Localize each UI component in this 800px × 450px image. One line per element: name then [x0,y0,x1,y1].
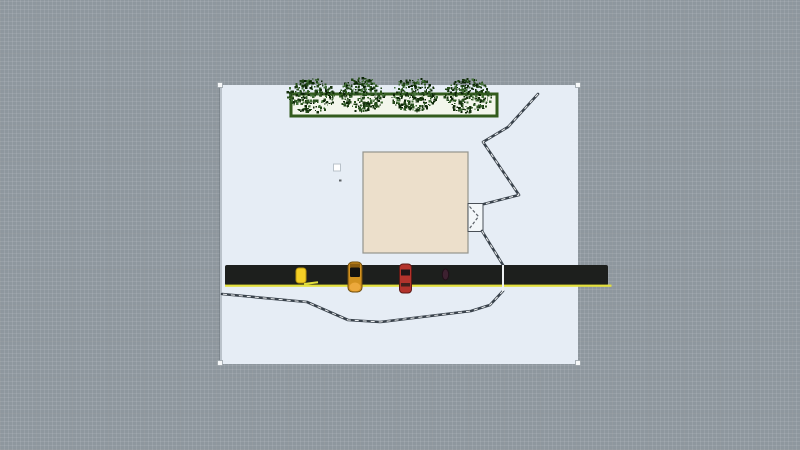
building[interactable] [363,152,468,253]
editor-workspace[interactable] [0,0,800,450]
vehicle-taxi-hood [350,264,360,268]
road[interactable] [225,265,608,286]
road-lane-line [225,285,612,287]
vehicle-red-body[interactable] [400,264,412,293]
pedestrian[interactable] [442,269,448,280]
marker-speck [339,180,342,182]
resize-handle-ne[interactable] [576,83,581,88]
editor-viewport[interactable] [0,0,800,450]
vehicle-red-windshield [401,270,410,276]
canvas-left-shade [219,85,222,364]
resize-handle-sw[interactable] [218,361,223,366]
vehicle-taxi-tail [350,283,361,292]
vehicle-yellow-cart[interactable] [296,268,306,283]
vehicle-taxi-window [350,268,360,278]
waypoint-marker[interactable] [334,164,341,171]
resize-handle-se[interactable] [576,361,581,366]
resize-handle-nw[interactable] [218,83,223,88]
vehicle-red-rear-window [401,283,410,287]
